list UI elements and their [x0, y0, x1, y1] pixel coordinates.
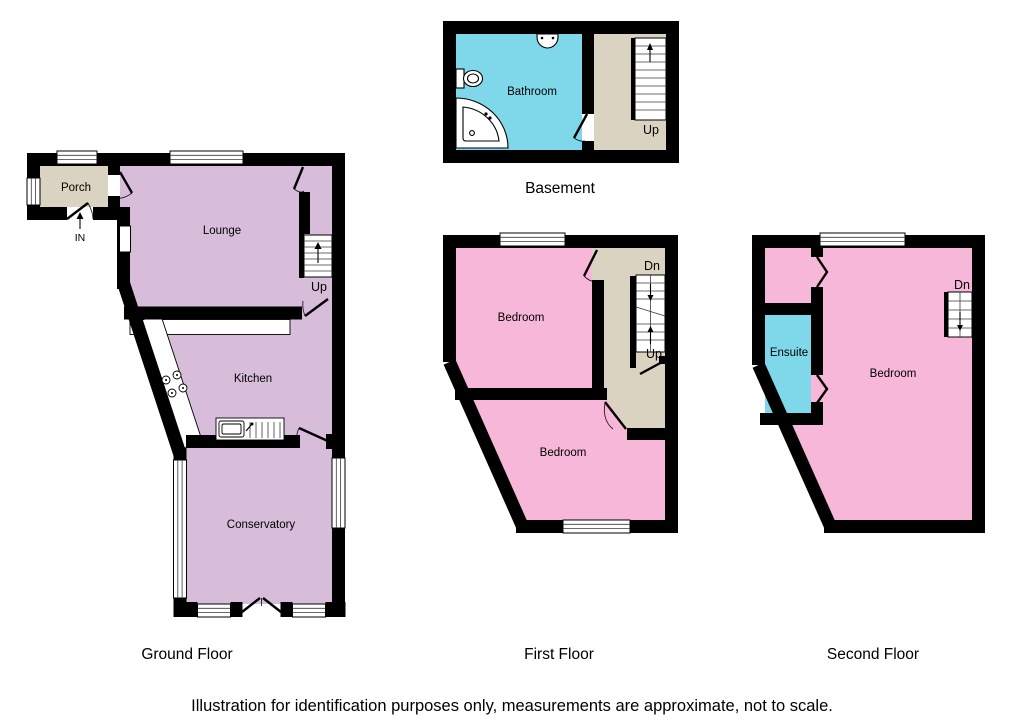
lounge-label: Lounge	[203, 225, 241, 237]
ground-stairs	[304, 235, 332, 277]
ensuite-label: Ensuite	[770, 347, 808, 359]
first-dn-label: Dn	[644, 259, 660, 273]
basement-up-label: Up	[643, 123, 659, 137]
second-dn-label: Dn	[954, 278, 970, 292]
sink-unit	[216, 418, 284, 440]
entrance-label: IN	[75, 232, 86, 244]
porch-label: Porch	[61, 182, 91, 194]
second-stairs	[948, 292, 972, 337]
toilet-fixture	[456, 69, 483, 88]
basement-stairs	[635, 38, 666, 120]
disclaimer-caption: Illustration for identification purposes…	[191, 697, 833, 715]
second-floor-title: Second Floor	[827, 646, 919, 663]
bedroom-back-label: Bedroom	[540, 447, 587, 459]
first-floor-title: First Floor	[524, 646, 594, 663]
second-windows	[820, 233, 905, 246]
second-bedroom-label: Bedroom	[870, 368, 917, 380]
basement-title: Basement	[525, 180, 595, 197]
lounge-alcove	[120, 226, 131, 252]
floorplan-canvas: Bathroom Up Basement	[0, 0, 1024, 725]
first-stairs	[636, 275, 665, 352]
floorplan-page: Bathroom Up Basement	[0, 0, 1024, 725]
conservatory-label: Conservatory	[227, 519, 296, 531]
first-up-label: Up	[646, 347, 662, 361]
bedroom-front-label: Bedroom	[498, 312, 545, 324]
bathroom-label: Bathroom	[507, 86, 557, 98]
kitchen-label: Kitchen	[234, 373, 272, 385]
ground-floor-title: Ground Floor	[141, 646, 232, 663]
ground-up-label: Up	[311, 280, 327, 294]
